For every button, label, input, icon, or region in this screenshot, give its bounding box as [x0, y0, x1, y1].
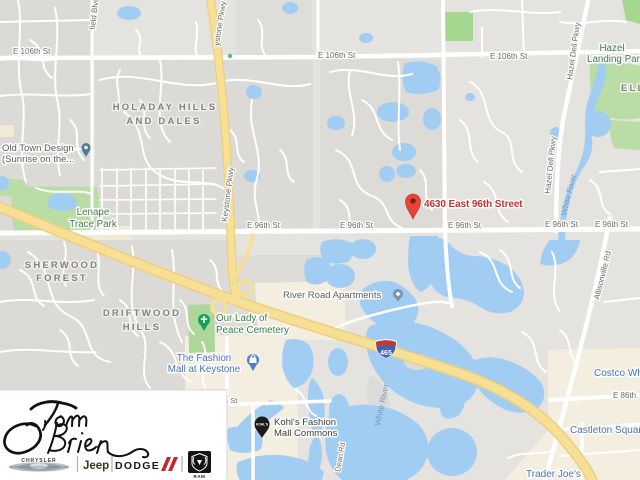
svg-text:(Sunrise on the...: (Sunrise on the... — [2, 154, 74, 165]
svg-text:E 106th St: E 106th St — [13, 47, 51, 56]
svg-text:FOREST: FOREST — [36, 273, 88, 284]
svg-text:HOLADAY HILLS: HOLADAY HILLS — [113, 102, 218, 113]
svg-text:Landing Park: Landing Park — [587, 54, 640, 65]
svg-text:E 96th St: E 96th St — [545, 220, 579, 229]
svg-text:AND DALES: AND DALES — [126, 116, 201, 127]
svg-text:E 86th: E 86th — [613, 391, 636, 400]
svg-text:DRIFTWOOD: DRIFTWOOD — [103, 308, 181, 319]
svg-text:Trader Joe's: Trader Joe's — [526, 469, 581, 480]
svg-text:KOHL'S: KOHL'S — [256, 423, 268, 427]
svg-text:Mall Commons: Mall Commons — [274, 428, 338, 439]
svg-text:Mall at Keystone: Mall at Keystone — [168, 364, 241, 375]
svg-text:Lenape: Lenape — [77, 207, 110, 218]
svg-text:465: 465 — [380, 350, 392, 357]
svg-text:Costco Whol: Costco Whol — [594, 368, 640, 379]
svg-text:HILLS: HILLS — [123, 322, 161, 333]
svg-text:RAM: RAM — [193, 474, 205, 479]
svg-text:E 106th St: E 106th St — [318, 51, 356, 60]
svg-text:E 96th St: E 96th St — [247, 221, 281, 230]
svg-text:The Fashion: The Fashion — [177, 353, 231, 364]
svg-text:Hazel: Hazel — [599, 43, 624, 54]
svg-text:DODGE: DODGE — [115, 460, 160, 472]
svg-text:E 96th St: E 96th St — [340, 221, 374, 230]
svg-text:River Road Apartments: River Road Apartments — [283, 290, 381, 301]
svg-text:ELLE: ELLE — [621, 83, 640, 94]
svg-text:Our Lady of: Our Lady of — [216, 313, 267, 324]
svg-text:E 96th St: E 96th St — [595, 220, 629, 229]
svg-text:Castleton Square: Castleton Square — [570, 425, 640, 436]
svg-text:E 106th St: E 106th St — [490, 52, 528, 61]
svg-text:E 96th St: E 96th St — [448, 221, 482, 230]
svg-text:Kohl's Fashion: Kohl's Fashion — [274, 417, 336, 428]
svg-text:4630 East 96th Street: 4630 East 96th Street — [424, 199, 523, 210]
svg-text:SHERWOOD: SHERWOOD — [25, 260, 99, 271]
svg-text:Peace Cemetery: Peace Cemetery — [216, 325, 289, 336]
svg-text:Jeep: Jeep — [83, 460, 109, 472]
svg-text:Old Town Design: Old Town Design — [2, 143, 74, 154]
svg-text:Trace Park: Trace Park — [69, 219, 117, 230]
